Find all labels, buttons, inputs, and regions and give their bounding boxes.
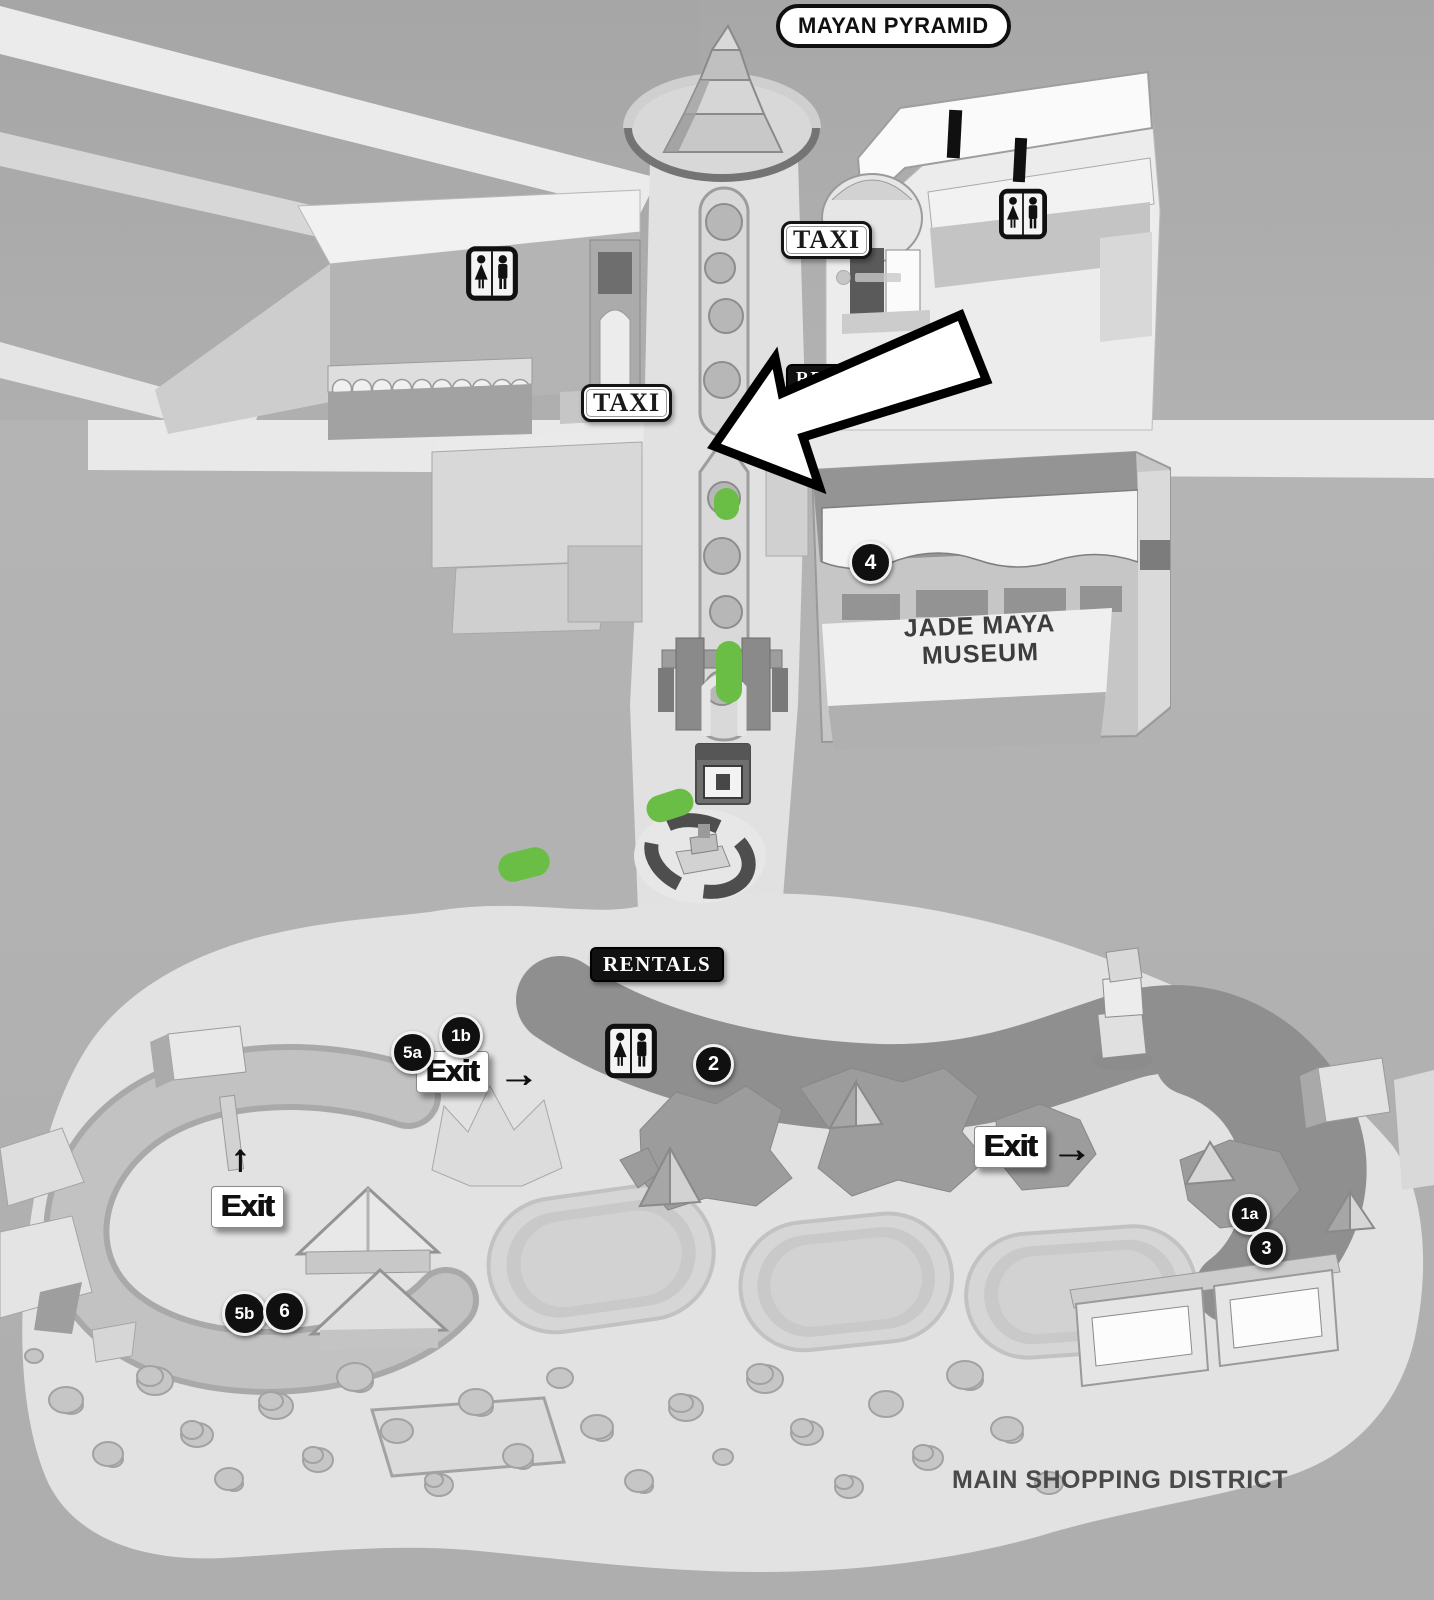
taxi-sign-west: TAXI bbox=[581, 384, 672, 422]
marker-2: 2 bbox=[693, 1044, 734, 1085]
marker-1a-label: 1a bbox=[1241, 1206, 1259, 1224]
marker-5b-label: 5b bbox=[235, 1304, 255, 1324]
marker-3: 3 bbox=[1247, 1229, 1286, 1268]
marker-1b: 1b bbox=[439, 1014, 483, 1058]
restroom-icon-north bbox=[998, 186, 1048, 242]
jade-maya-museum-sign: JADE MAYA MUSEUM bbox=[869, 608, 1091, 672]
restroom-icon-south bbox=[604, 1022, 658, 1080]
park-map: MAYAN PYRAMID TAXI TAXI RENTALS RENTALS … bbox=[0, 0, 1434, 1600]
rentals-sign-south: RENTALS bbox=[590, 947, 724, 982]
marker-6-label: 6 bbox=[279, 1301, 290, 1323]
exit-east-arrow-icon: → bbox=[1052, 1129, 1092, 1169]
marker-5b: 5b bbox=[222, 1291, 267, 1336]
main-shopping-district-label: MAIN SHOPPING DISTRICT bbox=[952, 1466, 1288, 1495]
exit-west-label: Exit bbox=[211, 1186, 284, 1228]
info-logo-mark bbox=[836, 270, 901, 285]
marker-6: 6 bbox=[263, 1290, 306, 1333]
exit-east-label: Exit bbox=[974, 1126, 1047, 1168]
exit-north-arrow-icon: → bbox=[499, 1054, 539, 1094]
map-illustration bbox=[0, 0, 1434, 1600]
route-dash bbox=[716, 641, 742, 703]
marker-4: 4 bbox=[849, 541, 892, 584]
marker-4-label: 4 bbox=[865, 551, 877, 575]
taxi-sign-north: TAXI bbox=[781, 221, 872, 259]
mayan-pyramid-label: MAYAN PYRAMID bbox=[776, 4, 1011, 48]
marker-3-label: 3 bbox=[1261, 1238, 1271, 1259]
marker-2-label: 2 bbox=[708, 1053, 719, 1076]
marker-1b-label: 1b bbox=[451, 1026, 471, 1046]
marker-5a-label: 5a bbox=[403, 1043, 422, 1063]
direction-arrow-icon bbox=[702, 296, 1022, 506]
exit-west-arrow-icon: ↑ bbox=[231, 1140, 250, 1178]
marker-5a: 5a bbox=[391, 1031, 434, 1074]
restroom-icon-west bbox=[465, 245, 519, 302]
